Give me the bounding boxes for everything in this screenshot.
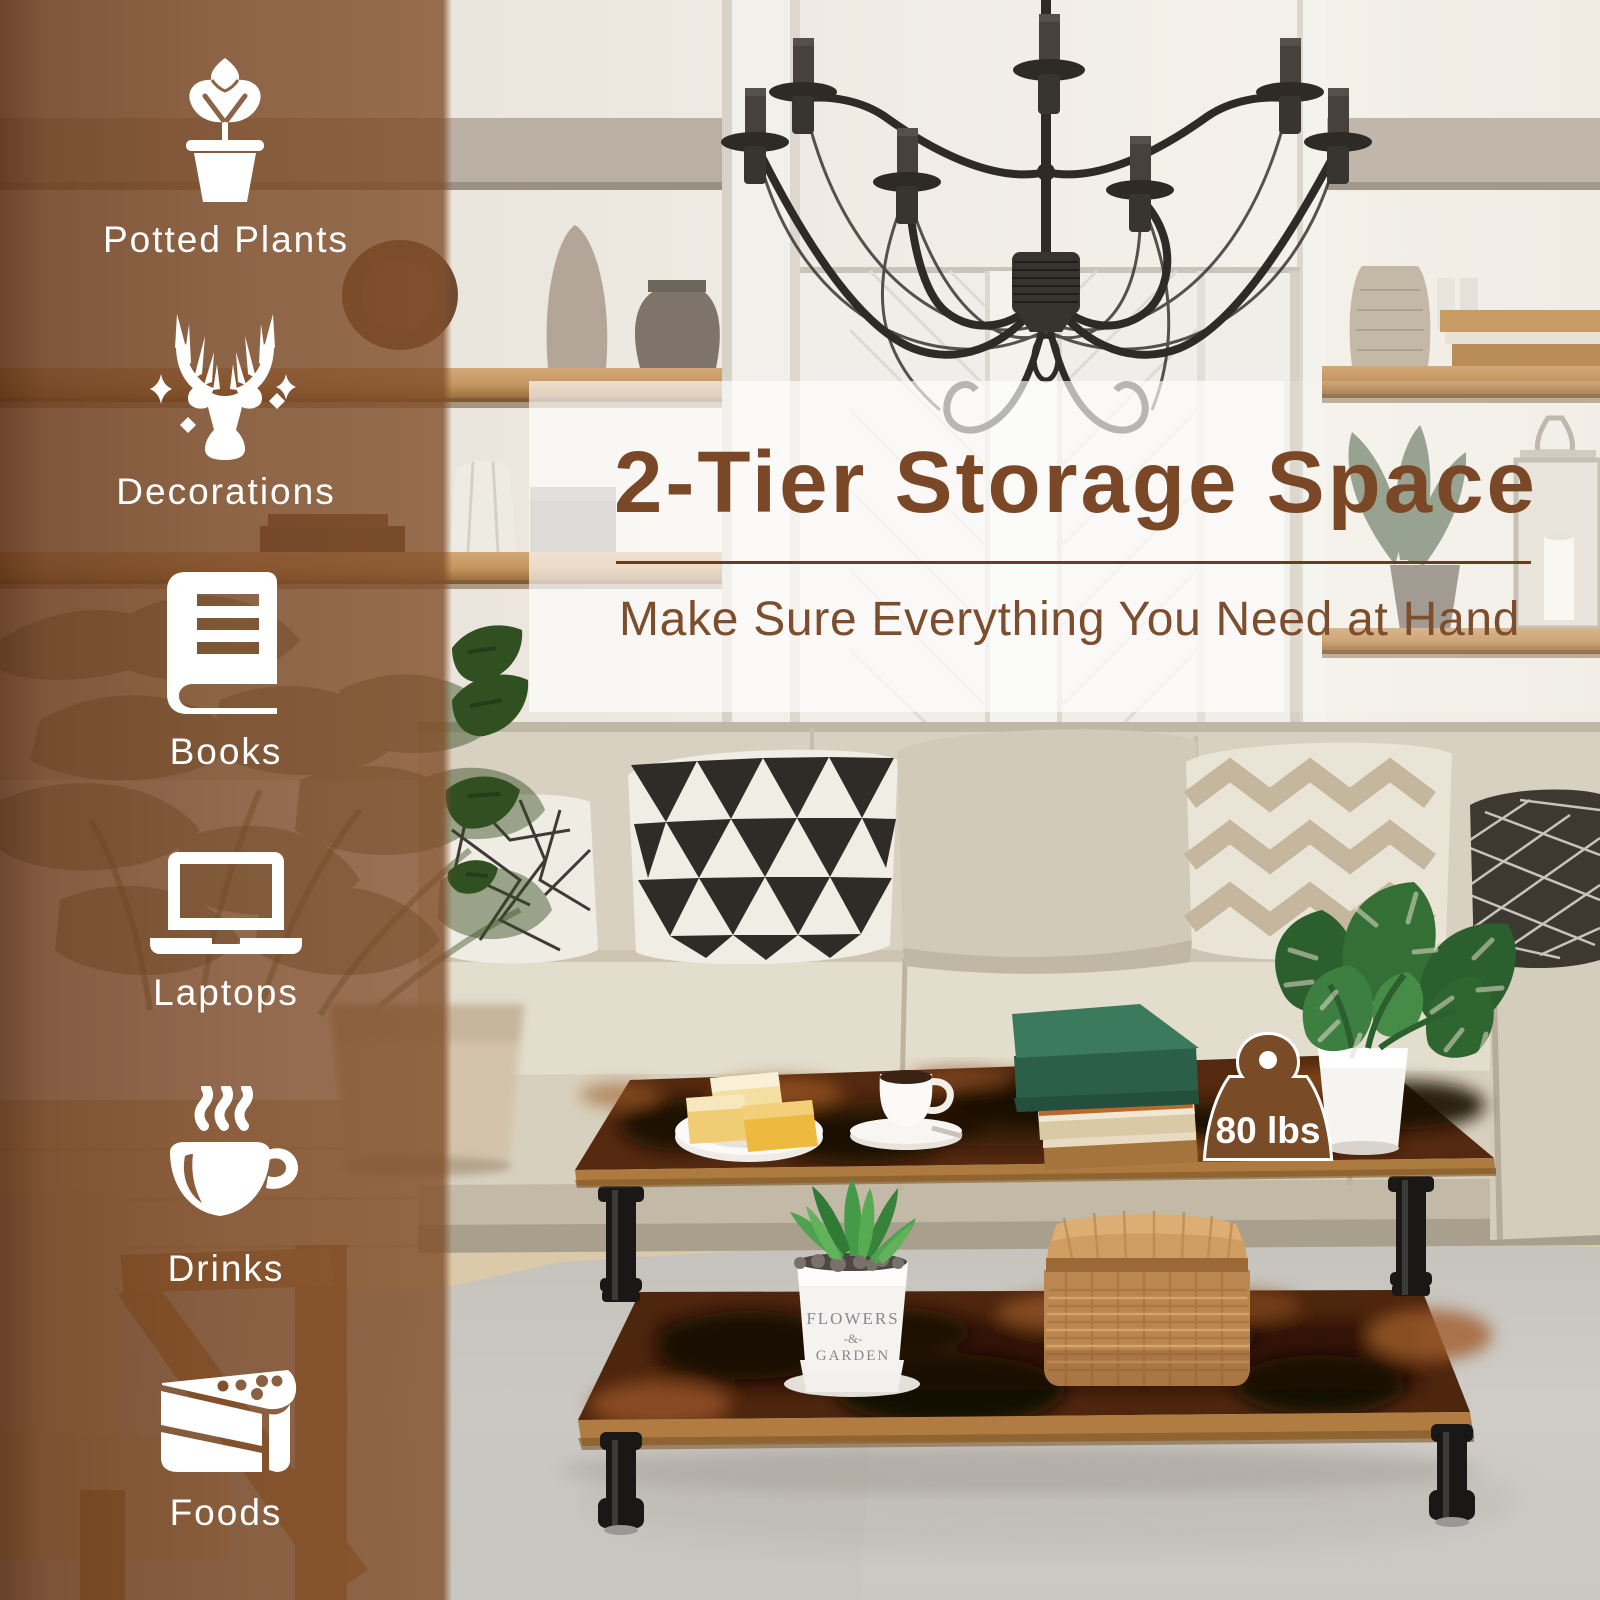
- svg-text:GARDEN: GARDEN: [816, 1348, 891, 1364]
- svg-text:FLOWERS: FLOWERS: [806, 1309, 899, 1328]
- svg-text:80 lbs: 80 lbs: [1216, 1110, 1321, 1151]
- svg-text:-&-: -&-: [844, 1331, 863, 1346]
